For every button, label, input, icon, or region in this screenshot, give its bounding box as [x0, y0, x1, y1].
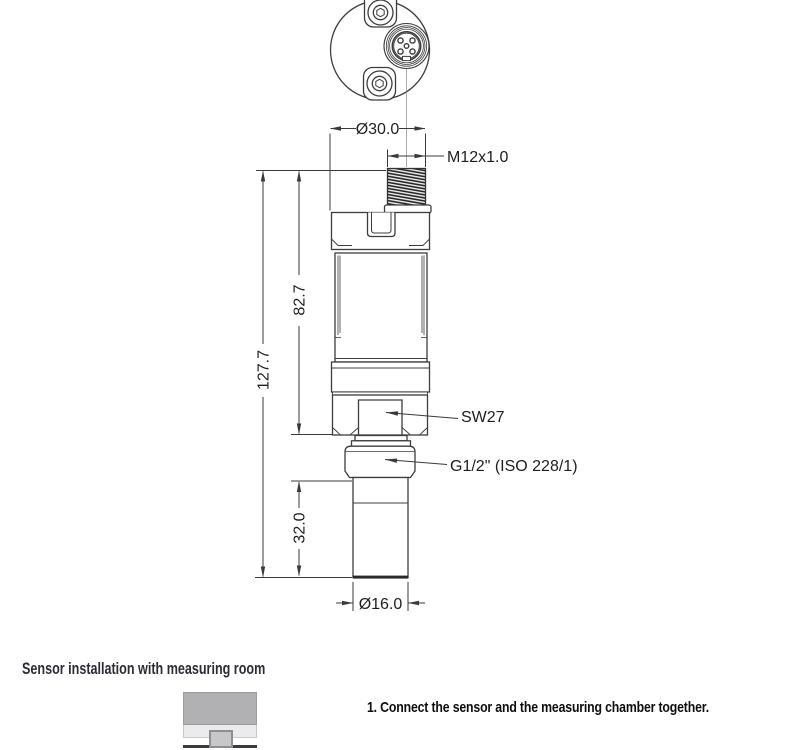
dim-label-dia16: Ø16.0 [359, 596, 403, 613]
m12-thread [388, 169, 426, 206]
dim-label-m12: M12x1.0 [447, 149, 508, 166]
lower-ring [332, 362, 430, 392]
dim-probe-length: 32.0 [291, 481, 352, 577]
section-title: Sensor installation with measuring room [22, 659, 265, 679]
top-view [331, 0, 430, 167]
hex-nut [333, 392, 428, 435]
neck-washer [352, 436, 411, 447]
label-g12: G1/2" (ISO 228/1) [450, 458, 578, 475]
dim-label-127-7: 127.7 [256, 350, 273, 390]
dim-label-dia30: Ø30.0 [356, 121, 400, 138]
sensor-dimension-drawing: Ø30.0 M12x1.0 82.7 127.7 [0, 0, 790, 658]
chamber-body [183, 692, 257, 725]
dim-connector-thread: M12x1.0 [388, 149, 509, 167]
instruction-step-1: 1. Connect the sensor and the measuring … [367, 699, 709, 716]
label-sw27: SW27 [461, 409, 505, 426]
connector-collar [385, 205, 432, 213]
upper-housing [332, 213, 430, 250]
pressure-port [353, 478, 409, 579]
dim-label-32-0: 32.0 [292, 512, 309, 543]
connector-keyway [403, 56, 411, 60]
chamber-port [209, 730, 233, 748]
mounting-screw-bottom [364, 68, 396, 101]
measuring-chamber-photo [183, 692, 259, 750]
sensor-datasheet-page: Ø30.0 M12x1.0 82.7 127.7 [0, 0, 790, 750]
m12-connector-face [384, 24, 429, 69]
process-thread-boss [345, 446, 415, 477]
dim-label-82-7: 82.7 [292, 284, 309, 315]
mounting-screw-top [365, 0, 397, 27]
dim-probe-diameter: Ø16.0 [336, 582, 425, 613]
main-body [335, 253, 427, 362]
front-view [332, 169, 432, 579]
